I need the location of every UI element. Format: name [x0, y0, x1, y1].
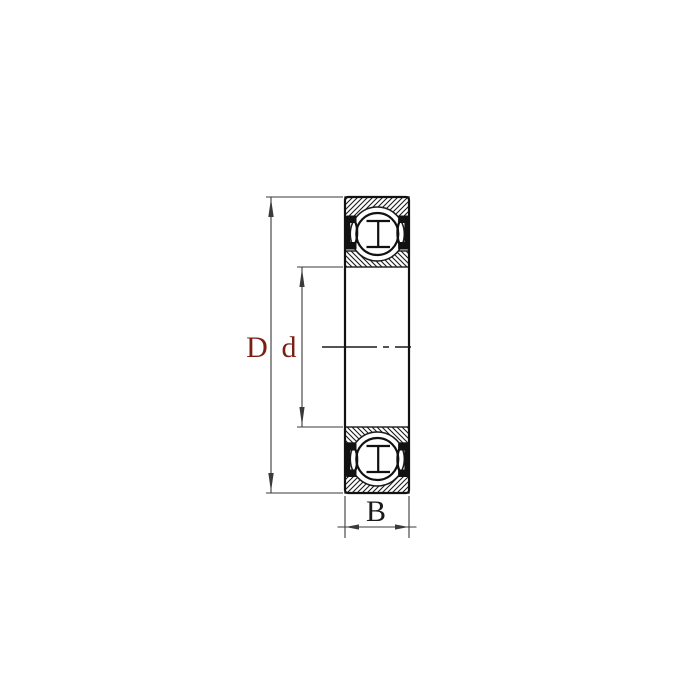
- arrowhead-down-icon: [299, 407, 304, 426]
- extension-lines-D: [266, 197, 343, 493]
- label-width: B: [366, 495, 386, 528]
- arrowhead-right-icon: [395, 524, 409, 529]
- bearing-technical-drawing: D d B: [0, 0, 700, 700]
- label-outer-diameter: D: [246, 331, 268, 364]
- dimension-outer-diameter: [266, 197, 343, 493]
- ball-bottom: [350, 432, 404, 486]
- ball-top: [350, 207, 404, 261]
- label-bore-diameter: d: [282, 331, 297, 364]
- arrowhead-up-icon: [268, 199, 273, 218]
- arrowhead-down-icon: [268, 473, 273, 492]
- arrowhead-left-icon: [346, 524, 360, 529]
- bearing-body: [322, 197, 411, 493]
- bearing-drawing-canvas: D d B: [0, 0, 700, 700]
- arrowhead-up-icon: [299, 269, 304, 288]
